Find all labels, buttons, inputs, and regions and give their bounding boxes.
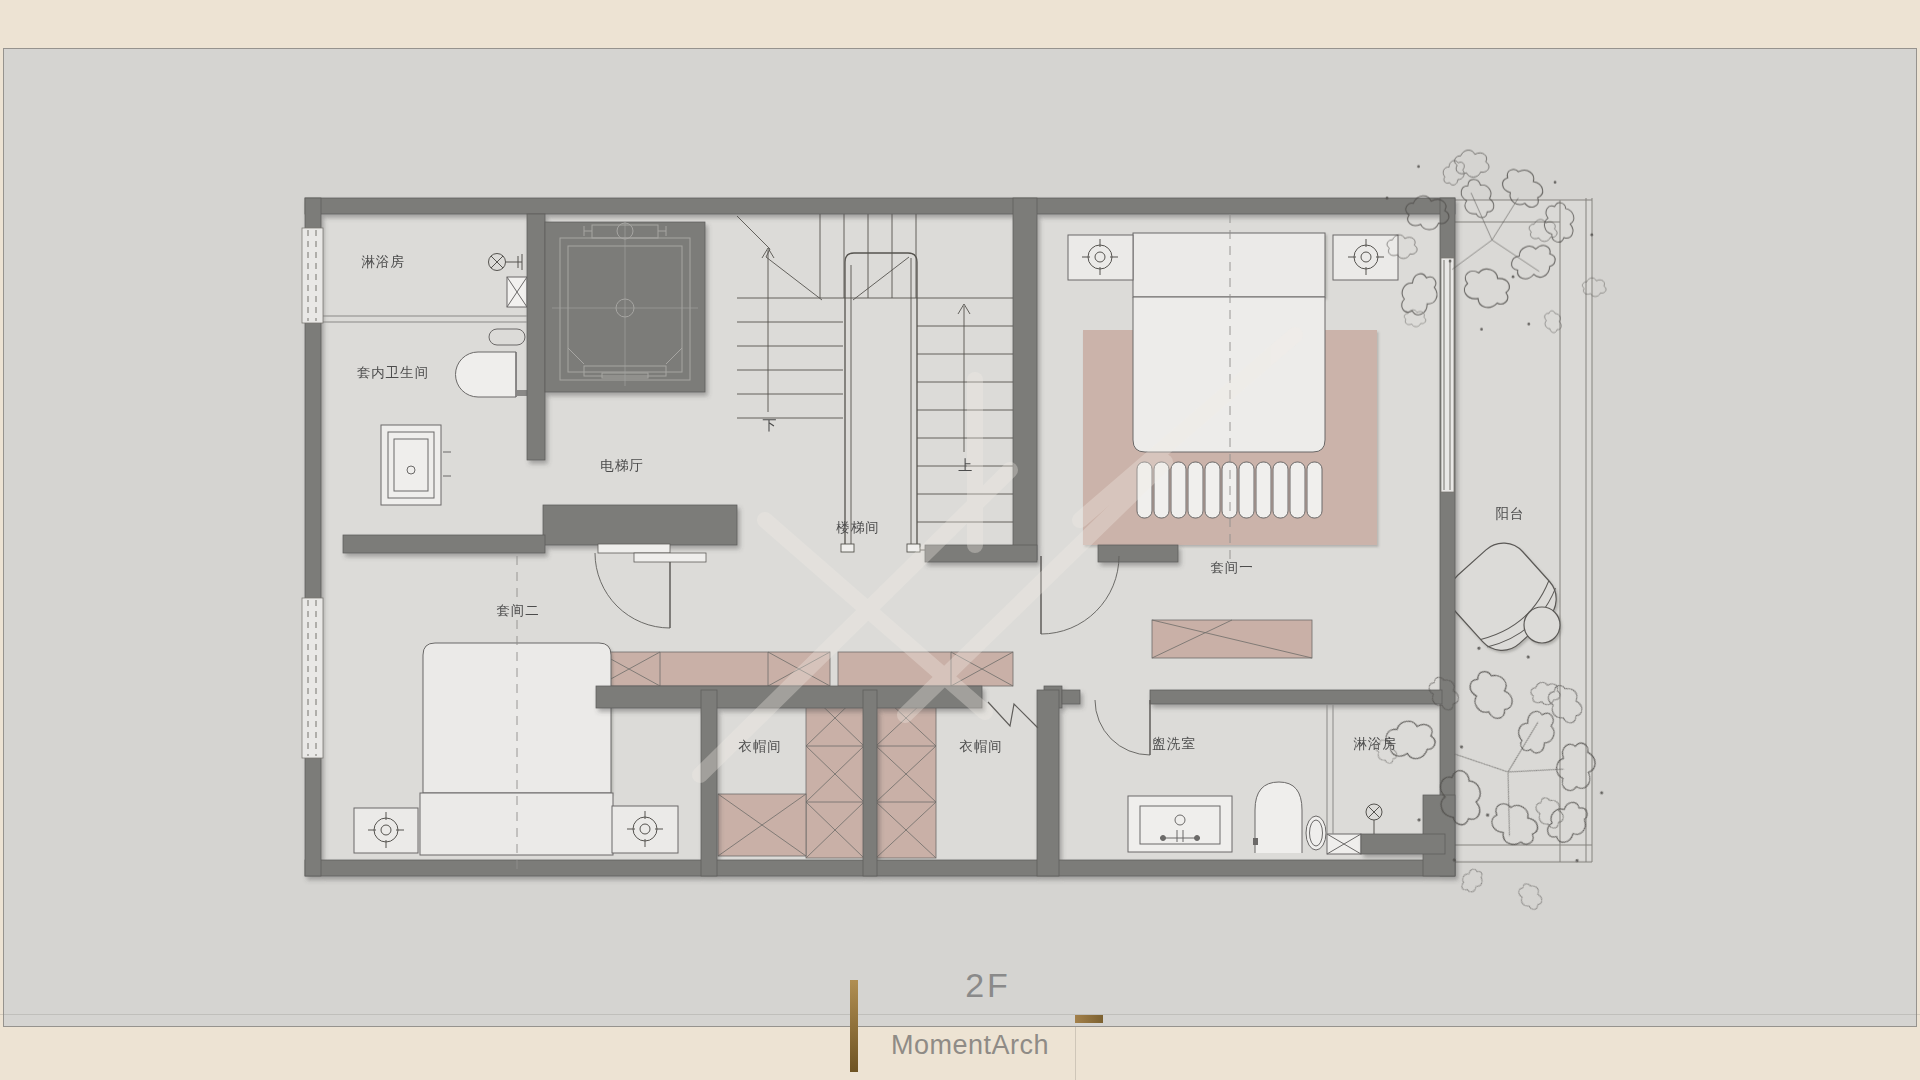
gold-accent-bar-horizontal	[1075, 1015, 1103, 1023]
floor-label: 2F	[908, 966, 1068, 1005]
room-label-cloakroom-left: 衣帽间	[738, 738, 782, 754]
room-label-shower-upper: 淋浴房	[361, 253, 405, 269]
window	[1441, 258, 1454, 492]
toilet	[456, 352, 516, 397]
side-table	[1524, 607, 1560, 643]
toilet-washroom	[1255, 782, 1302, 853]
bed-suite-one	[1133, 297, 1325, 452]
room-label-shower-lower: 淋浴房	[1353, 735, 1397, 751]
room-label-balcony: 阳台	[1496, 505, 1525, 521]
brand-logo-text: MomentArch	[850, 1030, 1090, 1061]
headboard-suite-one	[1133, 233, 1325, 297]
title-divider-line	[0, 1014, 1920, 1015]
bed-foot-suite-two	[420, 793, 613, 855]
vanity-unit	[381, 425, 441, 505]
stair-up-label: 上	[959, 457, 974, 473]
room-label-elevator-hall: 电梯厅	[600, 457, 644, 473]
stair-down-label: 下	[763, 417, 778, 433]
floor-plan: 淋浴房 套内卫生间 电梯厅 楼梯间 套间一 套间二 衣帽间 衣帽间 盥洗室 淋浴…	[0, 0, 1920, 1080]
room-label-suite-one: 套间一	[1210, 559, 1254, 575]
room-label-cloakroom-right: 衣帽间	[959, 738, 1003, 754]
room-label-washroom: 盥洗室	[1152, 735, 1196, 751]
room-label-stairwell: 楼梯间	[835, 519, 880, 535]
window	[302, 598, 323, 758]
window	[302, 228, 323, 323]
room-label-ensuite-bathroom: 套内卫生间	[357, 364, 430, 380]
presentation-sheet: 淋浴房 套内卫生间 电梯厅 楼梯间 套间一 套间二 衣帽间 衣帽间 盥洗室 淋浴…	[0, 0, 1920, 1080]
room-label-suite-two: 套间二	[496, 602, 540, 618]
